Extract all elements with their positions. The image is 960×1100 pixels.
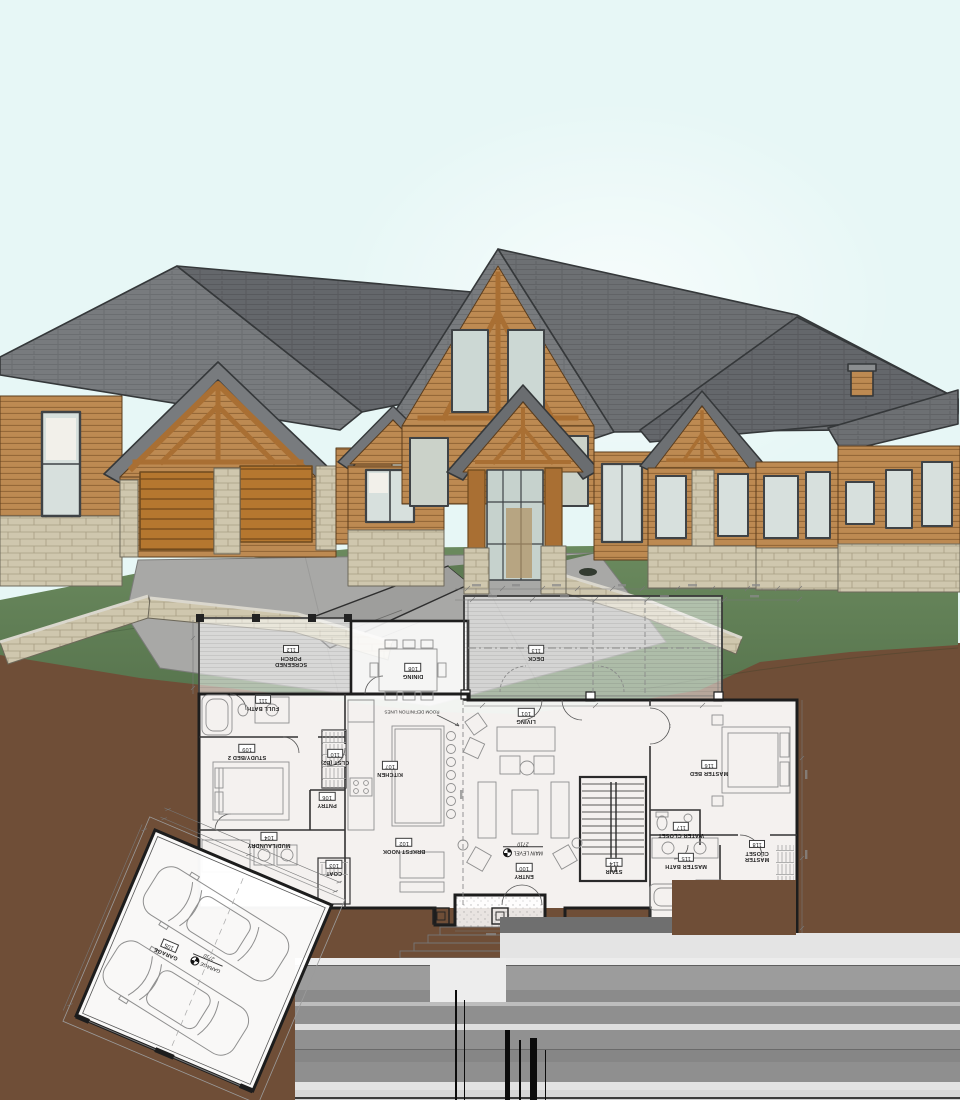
right-wing bbox=[756, 446, 960, 592]
architectural-rendering-view: SCREENED PORCH 112 DINING 108 DECK 113 F… bbox=[0, 0, 960, 1100]
garage-door-left bbox=[140, 472, 214, 550]
shrub bbox=[579, 568, 597, 576]
window bbox=[42, 412, 80, 516]
left-wing-wall bbox=[0, 396, 122, 586]
scene-canvas bbox=[0, 0, 960, 1100]
chimney bbox=[851, 368, 873, 396]
garage-door-right bbox=[240, 466, 312, 542]
